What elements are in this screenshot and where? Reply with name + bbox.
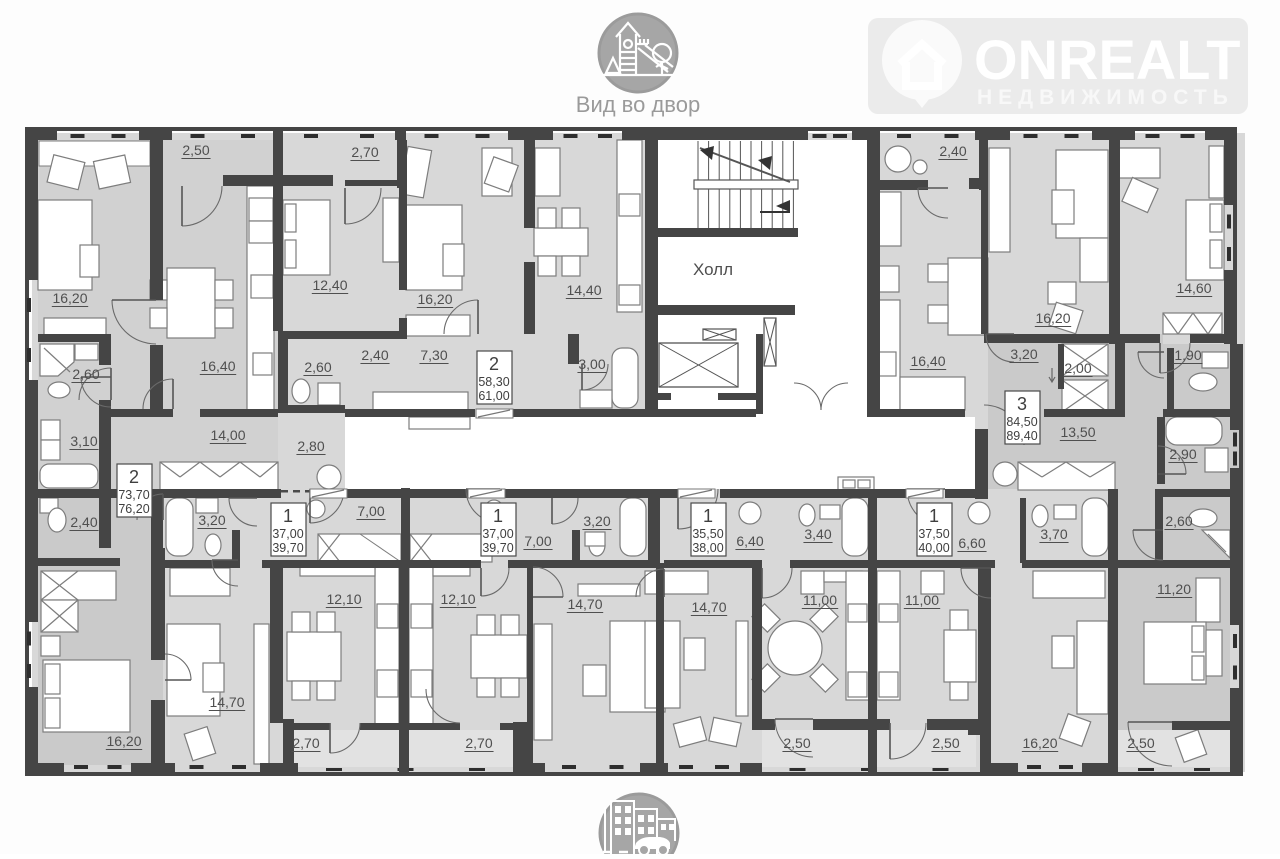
svg-text:11,20: 11,20 xyxy=(1157,581,1191,597)
svg-text:6,60: 6,60 xyxy=(958,535,985,551)
svg-text:2,50: 2,50 xyxy=(932,735,959,751)
svg-text:76,20: 76,20 xyxy=(118,502,149,516)
svg-text:3,20: 3,20 xyxy=(1010,346,1037,362)
svg-text:6,40: 6,40 xyxy=(736,533,763,549)
svg-text:2: 2 xyxy=(489,354,499,374)
svg-text:2,90: 2,90 xyxy=(1169,446,1196,462)
svg-text:16,20: 16,20 xyxy=(417,291,452,307)
svg-text:14,70: 14,70 xyxy=(567,596,602,612)
svg-text:37,00: 37,00 xyxy=(482,527,513,541)
svg-text:16,20: 16,20 xyxy=(52,290,87,306)
svg-text:2,50: 2,50 xyxy=(783,735,810,751)
svg-text:2,70: 2,70 xyxy=(292,735,319,751)
svg-text:12,10: 12,10 xyxy=(440,591,475,607)
svg-text:11,00: 11,00 xyxy=(905,592,939,608)
svg-text:16,40: 16,40 xyxy=(200,358,235,374)
svg-text:1: 1 xyxy=(703,506,713,526)
svg-text:2,60: 2,60 xyxy=(72,366,99,382)
svg-text:89,40: 89,40 xyxy=(1006,429,1037,443)
svg-text:1,90: 1,90 xyxy=(1174,347,1201,363)
svg-text:3: 3 xyxy=(1017,394,1027,414)
svg-text:НЕДВИЖИМОСТЬ: НЕДВИЖИМОСТЬ xyxy=(977,86,1234,109)
svg-text:73,70: 73,70 xyxy=(118,488,149,502)
svg-text:2,40: 2,40 xyxy=(70,514,97,530)
svg-text:7,00: 7,00 xyxy=(357,503,384,519)
svg-text:ONREALT: ONREALT xyxy=(974,28,1241,91)
svg-text:39,70: 39,70 xyxy=(482,541,513,555)
svg-text:2,50: 2,50 xyxy=(182,142,209,158)
svg-text:Холл: Холл xyxy=(693,260,733,279)
svg-text:2,60: 2,60 xyxy=(1165,513,1192,529)
svg-text:2,70: 2,70 xyxy=(465,735,492,751)
svg-text:35,50: 35,50 xyxy=(692,527,723,541)
svg-text:7,00: 7,00 xyxy=(524,533,551,549)
svg-text:14,70: 14,70 xyxy=(209,694,244,710)
svg-text:58,30: 58,30 xyxy=(478,375,509,389)
svg-text:13,50: 13,50 xyxy=(1060,424,1095,440)
svg-text:7,30: 7,30 xyxy=(420,347,447,363)
svg-text:3,00: 3,00 xyxy=(578,356,605,372)
svg-text:1: 1 xyxy=(493,506,503,526)
svg-text:14,40: 14,40 xyxy=(566,282,601,298)
svg-text:2,40: 2,40 xyxy=(361,347,388,363)
svg-text:16,40: 16,40 xyxy=(910,353,945,369)
svg-text:11,00: 11,00 xyxy=(803,592,837,608)
svg-text:1: 1 xyxy=(929,506,939,526)
svg-text:3,70: 3,70 xyxy=(1040,526,1067,542)
svg-text:40,00: 40,00 xyxy=(918,541,949,555)
svg-text:12,10: 12,10 xyxy=(326,591,361,607)
svg-text:Вид во двор: Вид во двор xyxy=(576,92,700,117)
svg-text:2,40: 2,40 xyxy=(939,143,966,159)
svg-text:3,10: 3,10 xyxy=(70,433,97,449)
svg-text:37,00: 37,00 xyxy=(272,527,303,541)
svg-text:39,70: 39,70 xyxy=(272,541,303,555)
svg-text:1: 1 xyxy=(283,506,293,526)
svg-text:14,70: 14,70 xyxy=(691,599,726,615)
svg-text:3,20: 3,20 xyxy=(198,512,225,528)
svg-text:16,20: 16,20 xyxy=(1035,310,1070,326)
svg-text:2,80: 2,80 xyxy=(297,438,324,454)
svg-text:84,50: 84,50 xyxy=(1006,415,1037,429)
svg-text:3,40: 3,40 xyxy=(804,526,831,542)
svg-text:16,20: 16,20 xyxy=(106,733,141,749)
svg-text:14,00: 14,00 xyxy=(210,427,245,443)
svg-text:2,50: 2,50 xyxy=(1127,735,1154,751)
svg-text:38,00: 38,00 xyxy=(692,541,723,555)
svg-text:37,50: 37,50 xyxy=(918,527,949,541)
svg-text:16,20: 16,20 xyxy=(1022,735,1057,751)
svg-text:2,60: 2,60 xyxy=(304,359,331,375)
svg-text:2: 2 xyxy=(129,467,139,487)
svg-text:2,70: 2,70 xyxy=(351,144,378,160)
svg-text:12,40: 12,40 xyxy=(312,277,347,293)
svg-text:3,20: 3,20 xyxy=(583,513,610,529)
svg-text:2,00: 2,00 xyxy=(1064,360,1091,376)
svg-text:61,00: 61,00 xyxy=(478,389,509,403)
svg-text:14,60: 14,60 xyxy=(1176,280,1211,296)
